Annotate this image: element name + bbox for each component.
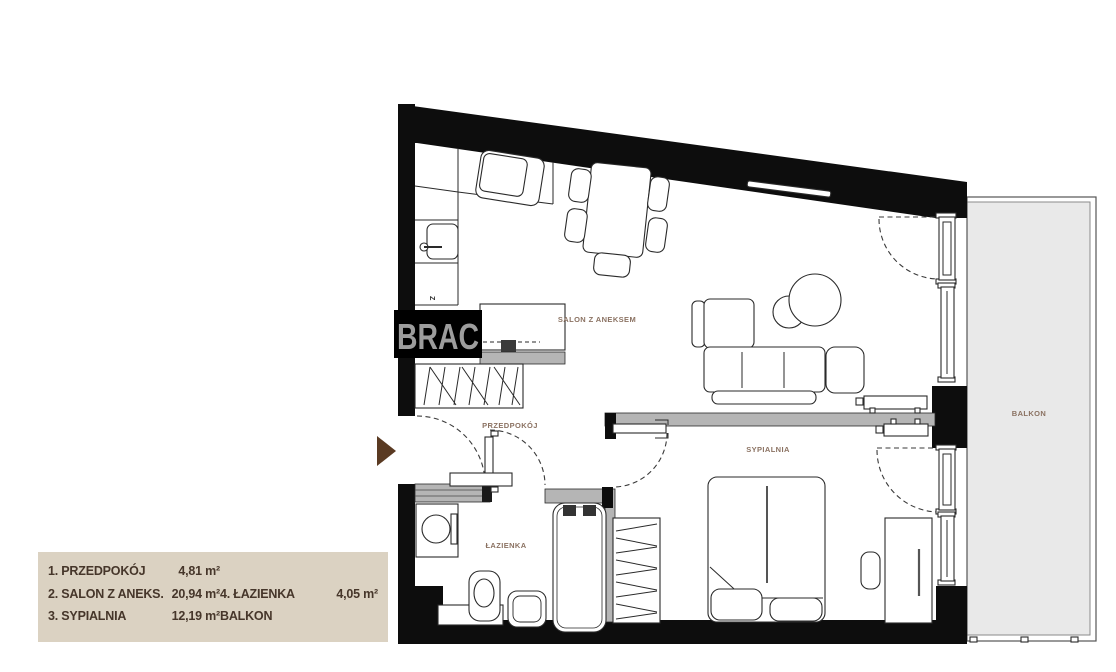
bathtub-tap <box>583 505 596 516</box>
bathroom-wall-right <box>545 489 607 503</box>
kitchen-stove <box>475 149 546 206</box>
dining-chair <box>568 168 592 203</box>
legend-room-label: 3. SYPIALNIA <box>48 608 170 626</box>
balcony <box>967 197 1096 642</box>
pillow <box>770 598 822 621</box>
legend-room-area <box>334 608 378 626</box>
pillow <box>711 589 762 620</box>
bathroom <box>416 503 606 632</box>
coffee-table-large <box>789 274 841 326</box>
wall-right-middle-block <box>932 386 967 448</box>
dining-table <box>582 162 651 258</box>
label-przedpokoj: PRZEDPOKÓJ <box>482 421 538 430</box>
watermark: BRAC <box>394 310 482 358</box>
bedroom-stool <box>861 552 880 589</box>
hall-wardrobe <box>415 364 523 408</box>
label-lazienka: ŁAZIENKA <box>485 541 526 550</box>
floorplan-page: BRAC SALON Z ANEKSEM PRZEDPOKÓJ ŁAZIENKA… <box>0 0 1116 672</box>
dining-chair <box>564 208 588 243</box>
wall-right-bottom-block <box>936 586 967 644</box>
balcony-door-living <box>939 217 955 280</box>
sofa-armrest-left <box>692 301 705 347</box>
stove-inner <box>479 153 528 197</box>
legend-room-label: BALKON <box>220 608 334 626</box>
radiator-bedroom <box>884 424 928 436</box>
balcony-railing-foot <box>1021 637 1028 642</box>
door-hinge-mark <box>491 431 498 436</box>
radiator-foot <box>915 419 920 424</box>
kitchen-unit-marker: Z <box>428 296 435 301</box>
bedroom-dresser <box>885 518 932 623</box>
radiator-valve <box>856 398 863 405</box>
bedroom-door-swing <box>613 433 667 487</box>
dining-chair <box>593 252 631 278</box>
door-hinge-mark <box>491 487 498 492</box>
radiator-foot <box>891 419 896 424</box>
balcony-door-bedroom <box>939 449 955 510</box>
legend-room-label: 2. SALON Z ANEKS. <box>48 586 170 604</box>
bathtub <box>553 503 606 632</box>
legend-room-area <box>334 563 378 581</box>
bedroom-wardrobe <box>613 518 660 623</box>
sofa-armrest-right <box>826 347 864 393</box>
bathtub-tap <box>563 505 576 516</box>
radiator-foot <box>915 408 920 413</box>
bathroom-wall-left <box>415 484 490 502</box>
radiator-foot <box>870 408 875 413</box>
label-balkon: BALKON <box>1012 409 1046 418</box>
legend-room-label: 4. ŁAZIENKA <box>220 586 334 604</box>
balcony-railing-foot <box>970 637 977 642</box>
legend-room-area: 4,81 m² <box>170 563 220 581</box>
living-room-furniture <box>692 181 927 413</box>
kitchen-sink <box>427 224 458 259</box>
dining-chair <box>645 217 669 253</box>
kitchen-counter-strip <box>480 352 565 364</box>
cabinet-detail <box>501 340 516 353</box>
bedroom-door-leaf <box>613 424 666 433</box>
sofa-skirt <box>712 391 816 404</box>
legend-room-label <box>220 563 334 581</box>
toilet-bowl <box>474 579 494 607</box>
sofa-seats <box>704 347 825 392</box>
legend-room-area: 4,05 m² <box>334 586 378 604</box>
legend-room-area: 20,94 m² <box>170 586 220 604</box>
washing-machine-drum <box>422 515 450 543</box>
balcony-door-swing-bedroom <box>877 448 939 512</box>
area-legend: 1. PRZEDPOKÓJ 4,81 m² 2. SALON Z ANEKS. … <box>38 552 388 642</box>
legend-room-label: 1. PRZEDPOKÓJ <box>48 563 170 581</box>
sofa-corner-seat <box>704 299 754 348</box>
entrance-opening <box>398 416 415 484</box>
label-salon: SALON Z ANEKSEM <box>558 315 636 324</box>
legend-room-area: 12,19 m² <box>170 608 220 626</box>
legend-grid: 1. PRZEDPOKÓJ 4,81 m² 2. SALON Z ANEKS. … <box>48 563 378 626</box>
sliding-door-panel <box>450 473 512 486</box>
radiator-valve <box>876 426 883 433</box>
entrance-arrow-icon <box>377 436 396 466</box>
balcony-door-swing-living <box>879 217 939 279</box>
washing-machine-panel <box>451 514 457 544</box>
label-sypialnia: SYPIALNIA <box>746 445 790 454</box>
wall-left <box>398 104 415 628</box>
balcony-railing-foot <box>1071 637 1078 642</box>
door-post <box>602 487 613 508</box>
radiator-living <box>864 396 927 409</box>
kitchen-cabinet <box>480 304 565 350</box>
balcony-slab <box>967 202 1090 635</box>
watermark-text: BRAC <box>397 316 479 357</box>
dining-set <box>564 162 671 278</box>
